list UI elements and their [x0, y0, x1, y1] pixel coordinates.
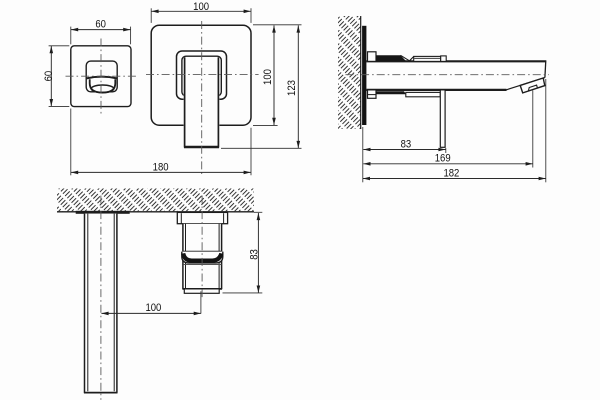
- svg-text:180: 180: [153, 161, 169, 173]
- svg-text:100: 100: [145, 302, 161, 314]
- svg-text:83: 83: [249, 249, 261, 260]
- svg-text:182: 182: [443, 167, 459, 179]
- svg-text:100: 100: [193, 1, 209, 13]
- svg-text:60: 60: [43, 71, 55, 82]
- svg-text:83: 83: [401, 138, 412, 150]
- svg-text:169: 169: [435, 153, 451, 165]
- svg-text:60: 60: [95, 19, 106, 31]
- svg-text:123: 123: [286, 80, 298, 96]
- svg-text:100: 100: [262, 69, 274, 85]
